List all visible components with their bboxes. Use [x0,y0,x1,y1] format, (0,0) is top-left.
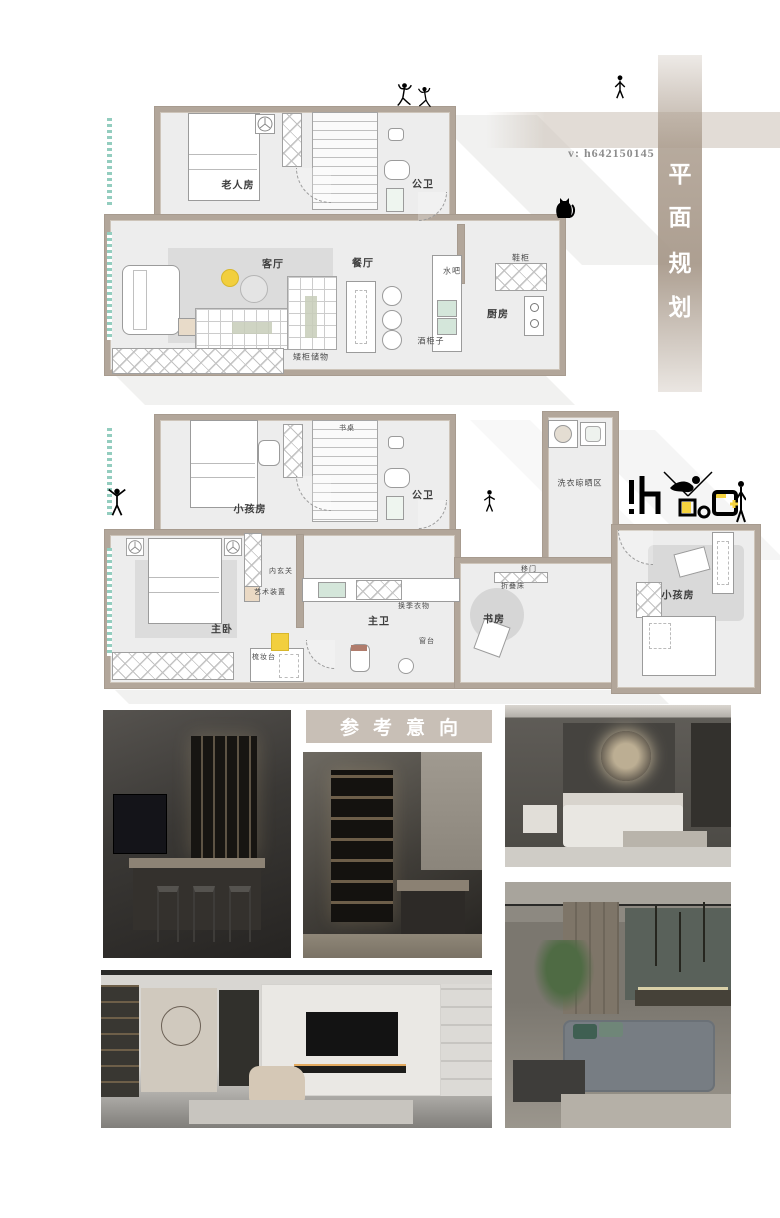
banner-char: 规 [658,244,702,278]
plan2-laundry-sink [580,422,606,446]
area-rug [561,1094,731,1128]
plan2-master-toilet [350,644,370,672]
wall-clock [161,1006,201,1046]
plan1-bottom-cabinets [112,348,284,374]
room-label-bench-storage: 矮柜储物 [293,352,329,363]
room-label-kids-right: 小孩房 [662,587,695,602]
bed-blanket-line [149,577,219,593]
photo-wine-bar-cabinet [303,752,482,958]
linear-fireplace [294,1064,406,1073]
wine-cooler [113,794,167,854]
figure-silhouette-icon [106,486,128,517]
green-pillows [573,1024,597,1039]
plan2-seasonal-closet [356,580,402,600]
potted-plant [533,940,595,1012]
vertical-title-banner: 平 面 规 划 [658,55,702,392]
design-poster: 平 面 规 划 v: h642150145 老人房 公卫 客厅 餐厅 水吧 [0,0,780,1218]
concrete-wall [421,752,482,870]
master-bath-sink [318,582,346,598]
banner-char: 平 [658,155,702,189]
plan1-wardrobe [282,113,302,167]
dining-table-candles [635,990,731,1006]
plan1-sofa-chaise [122,265,180,335]
room-label-master: 主卧 [211,621,233,636]
plan2-washing-machine [548,420,578,448]
cat-silhouette-icon [552,194,576,220]
sink-basin [585,426,601,442]
ceiling-fan-icon [224,538,242,556]
plan2-bottom-cabinets [112,652,234,680]
room-label-wine-cabinet: 酒柜子 [418,336,445,347]
plan2-kids-closet [636,582,662,618]
label-desk: 书桌 [339,423,355,433]
photo-living-gray-sofa [505,882,731,1128]
label-folding-bed: 折叠床 [501,581,525,591]
label-sliding-door: 移门 [521,564,537,574]
plan1-dining-chair [382,310,402,330]
light-floor [303,934,482,958]
room-label-study: 书房 [483,611,505,626]
display-cabinet [441,984,492,1096]
backlit-wine-shelves [191,736,257,858]
sofa-back-line [133,270,147,330]
television [306,1012,398,1056]
shadow-band [115,375,575,405]
water-bar-sink [437,300,457,317]
plan1-dining-table [346,281,376,353]
bar-stool [193,886,215,942]
room-label-dining: 餐厅 [352,255,374,270]
photo-dark-kitchen-island [103,710,291,958]
section-header-band: 参考意向 [306,710,492,743]
photo-living-tv-wall [101,970,492,1128]
room-label-living: 客厅 [262,256,284,271]
figure-silhouette-icon [482,486,497,516]
plan1-dining-chair [382,286,402,306]
section-header-text: 参考意向 [326,713,472,740]
figure-silhouette-icon [396,82,413,107]
label-art-installation: 艺术装置 [254,587,286,597]
light-rug-floor [505,847,731,867]
plan2-kids-cabinet [712,532,734,594]
bench-cushion [232,322,272,334]
water-bar-sink [437,318,457,335]
plan2-kids-desk [258,440,280,466]
bar-stool [157,886,179,942]
table-center-line [355,290,367,344]
label-seasonal-closet: 换季衣物 [398,601,430,611]
shadow-band [115,690,669,704]
bench-cushion [305,296,317,338]
bed-pillow [649,623,671,649]
figure-silhouette-icon [417,86,432,108]
bed-blanket-line [191,463,255,478]
plan2-yellow-accent [271,633,289,651]
floor-rug [189,1100,413,1124]
plan1-bath-toilet [384,160,410,180]
ceiling-fan-icon [126,538,144,556]
plan2-bath-vanity [386,496,404,520]
plan1-bath-vanity [386,188,404,212]
room-label-public-bath-2: 公卫 [412,487,434,502]
plan1-window-hatch [107,232,112,340]
burner [530,303,539,312]
banner-char: 面 [658,198,702,232]
plan1-window-hatch [107,118,112,206]
label-inner-hall: 内玄关 [269,566,293,576]
washer-drum [554,425,572,443]
dresser-seat [279,654,299,678]
toilet-tank [351,645,367,651]
plan2-window-hatch [107,548,112,656]
photo-bedroom-ring-art [505,705,731,867]
room-label-water-bar: 水吧 [443,266,461,277]
room-label-laundry: 洗衣晾晒区 [558,478,603,489]
plan2-bath-sink [388,436,404,449]
banner-char: 划 [658,288,702,322]
bed-blanket-line [189,154,257,170]
bar-stool [229,886,251,942]
island-countertop [129,858,265,868]
green-back-wall [625,908,731,1000]
dark-wardrobe [691,723,731,827]
room-label-kitchen: 厨房 [487,306,509,321]
ceiling-fan-icon [255,114,275,134]
pendant-lights [655,906,657,966]
backlit-bookshelf [101,985,139,1097]
plan2-floor-drain [398,658,414,674]
plan1-bath-sink [388,128,404,141]
plan1-yellow-stool [221,269,239,287]
label-dressing-table: 梳妆台 [252,652,276,662]
plan2-master-bed [148,538,222,624]
plan2-wardrobe [283,424,303,478]
plan2-entry-closet [244,533,262,587]
room-label-elder-room: 老人房 [222,177,255,192]
label-window-sill: 窗台 [419,636,435,646]
plan1-shoe-cabinet [495,263,547,291]
plan2-kids-bed-top [190,420,258,508]
room-label-master-bath: 主卫 [368,613,390,628]
plan1-cooktop [524,296,544,336]
room-label-shoe-cabinet: 鞋柜 [512,253,530,264]
plan1-ceiling-fan-large [240,275,268,303]
room-label-kids-top: 小孩房 [234,501,267,516]
watermark-text: v: h642150145 [568,146,655,161]
plan2-bath-toilet [384,468,410,488]
top-horizontal-band [486,112,780,148]
backlit-bottle-shelves [331,770,393,922]
figure-silhouette-icon [612,72,628,102]
plan2-kids-bed-right [642,616,716,676]
room-label-public-bath: 公卫 [412,176,434,191]
guitar-sketch [717,541,729,585]
bar-countertop [397,880,469,891]
studio-logo [626,466,746,528]
lounge-chair [249,1066,305,1102]
glowing-ring-art [601,731,651,781]
burner [530,319,539,328]
plan1-dining-chair [382,330,402,350]
nightstand [523,805,557,833]
